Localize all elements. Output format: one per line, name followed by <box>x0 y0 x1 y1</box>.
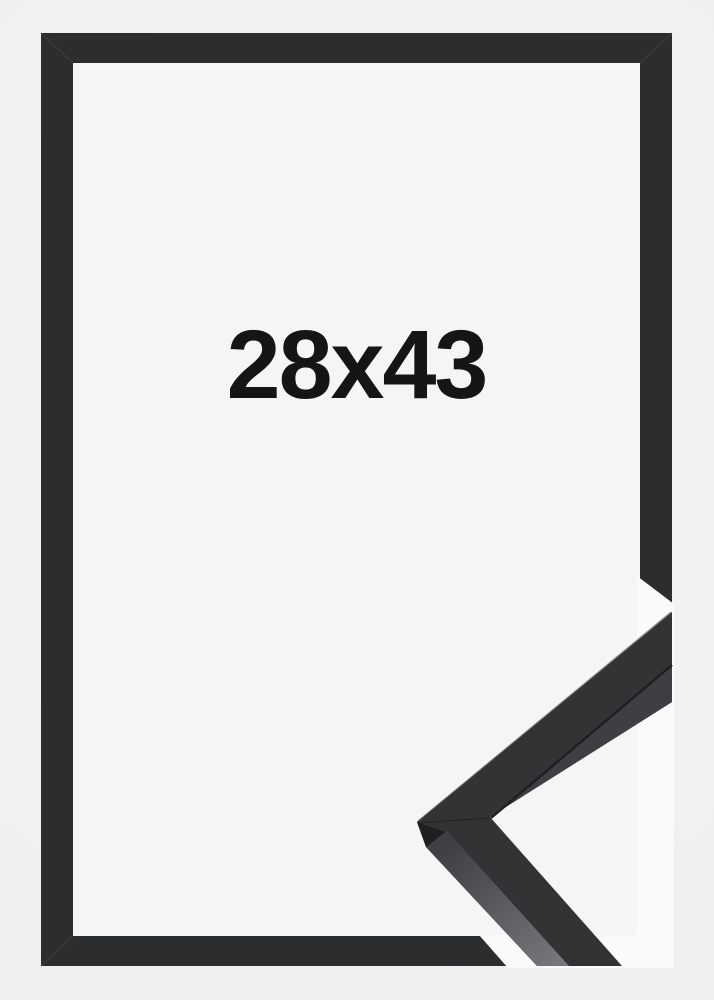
frame-photo-graphic <box>0 0 714 1000</box>
size-label: 28x43 <box>73 310 640 420</box>
frame-backing <box>73 63 640 936</box>
product-photo: 28x43 <box>0 0 714 1000</box>
